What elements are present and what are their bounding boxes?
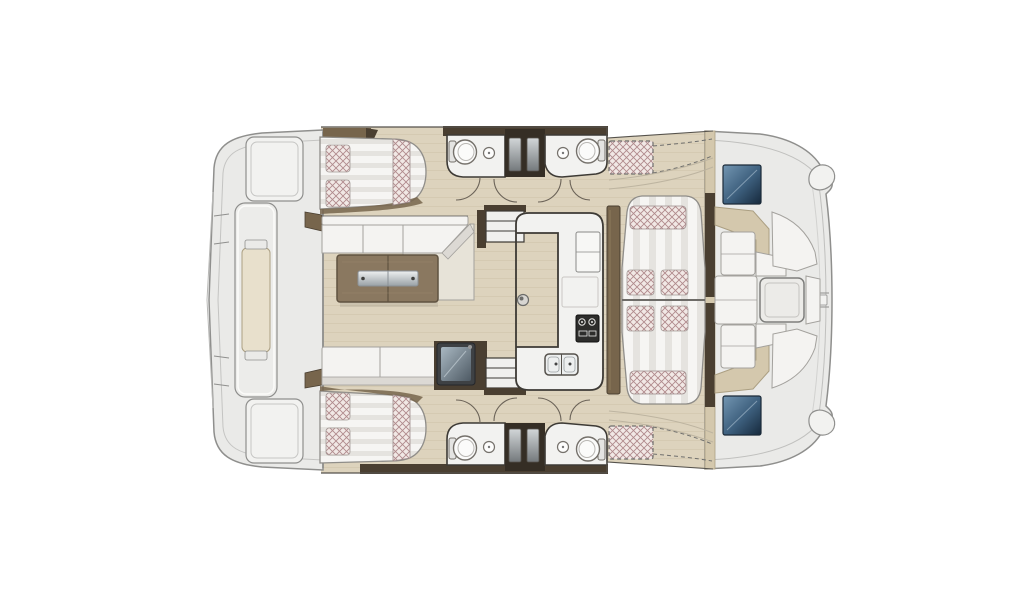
pillow-bottom-1 <box>326 393 350 420</box>
sun-pad-top <box>609 141 653 174</box>
basin-drain-tl <box>488 152 490 154</box>
aft-locker-bottom <box>246 399 303 463</box>
bulkhead-wood-bottom <box>705 303 715 407</box>
dinette-bolster-bottom <box>630 371 686 394</box>
dinette-cushion-1 <box>627 270 654 295</box>
aft-platform <box>207 130 323 470</box>
stove <box>576 315 599 342</box>
tv-knob <box>468 345 472 349</box>
burner-1-dot <box>581 321 583 323</box>
dinette-bolster-top <box>630 206 686 229</box>
headboard-top <box>323 128 371 138</box>
sun-pad-bottom <box>609 426 653 459</box>
dinette-cushion-4 <box>661 306 688 331</box>
cockpit-seat-top <box>721 232 755 275</box>
berth-bolster-bottom <box>393 395 410 461</box>
bulkhead-wood-top <box>705 193 715 297</box>
pillow-top-2 <box>326 180 350 207</box>
console-cap-top <box>245 240 267 249</box>
stair-lintel-bottom <box>484 388 526 395</box>
basin-drain-bl <box>488 446 490 448</box>
basin-drain-br <box>562 446 564 448</box>
catamaran-floor-plan <box>0 0 1024 600</box>
console-cap-bottom <box>245 351 267 360</box>
pillow-top-1 <box>326 145 350 172</box>
cockpit-bulkhead <box>705 131 715 469</box>
pillow-bottom-2 <box>326 428 350 455</box>
dinette-cushion-2 <box>661 270 688 295</box>
cockpit-seat-bottom <box>721 325 755 368</box>
cockpit-table <box>760 278 804 322</box>
aft-locker-top <box>246 137 303 201</box>
bow-bench-middle <box>806 276 820 324</box>
divider-panel-t2 <box>527 138 539 171</box>
sink-drain-2 <box>569 363 572 366</box>
floor-plan-canvas <box>0 0 1024 600</box>
handle-screw-right <box>411 277 415 281</box>
aft-console-wood-inset <box>242 248 270 352</box>
dinette-cushion-3 <box>627 306 654 331</box>
head-compartments-top <box>447 129 607 177</box>
burner-2-dot <box>591 321 593 323</box>
divider-panel-b2 <box>527 429 539 462</box>
bench-backrest <box>322 377 438 385</box>
dinette-side-rail <box>607 206 620 394</box>
head-compartments-bottom <box>447 423 607 471</box>
salon-corner-cabinet <box>477 210 486 248</box>
basin-drain-tr <box>562 152 564 154</box>
bow-cockpit <box>705 131 835 469</box>
floor-fitting <box>518 295 529 306</box>
divider-panel-b1 <box>509 429 521 462</box>
companionway-stairs-bottom <box>486 358 520 388</box>
sofa-backrest <box>322 216 468 225</box>
handle-screw-left <box>361 277 365 281</box>
berth-bolster-top <box>393 139 410 205</box>
divider-panel-t1 <box>509 138 521 171</box>
sink-drain-1 <box>555 363 558 366</box>
floor-fitting-dot <box>520 297 524 301</box>
